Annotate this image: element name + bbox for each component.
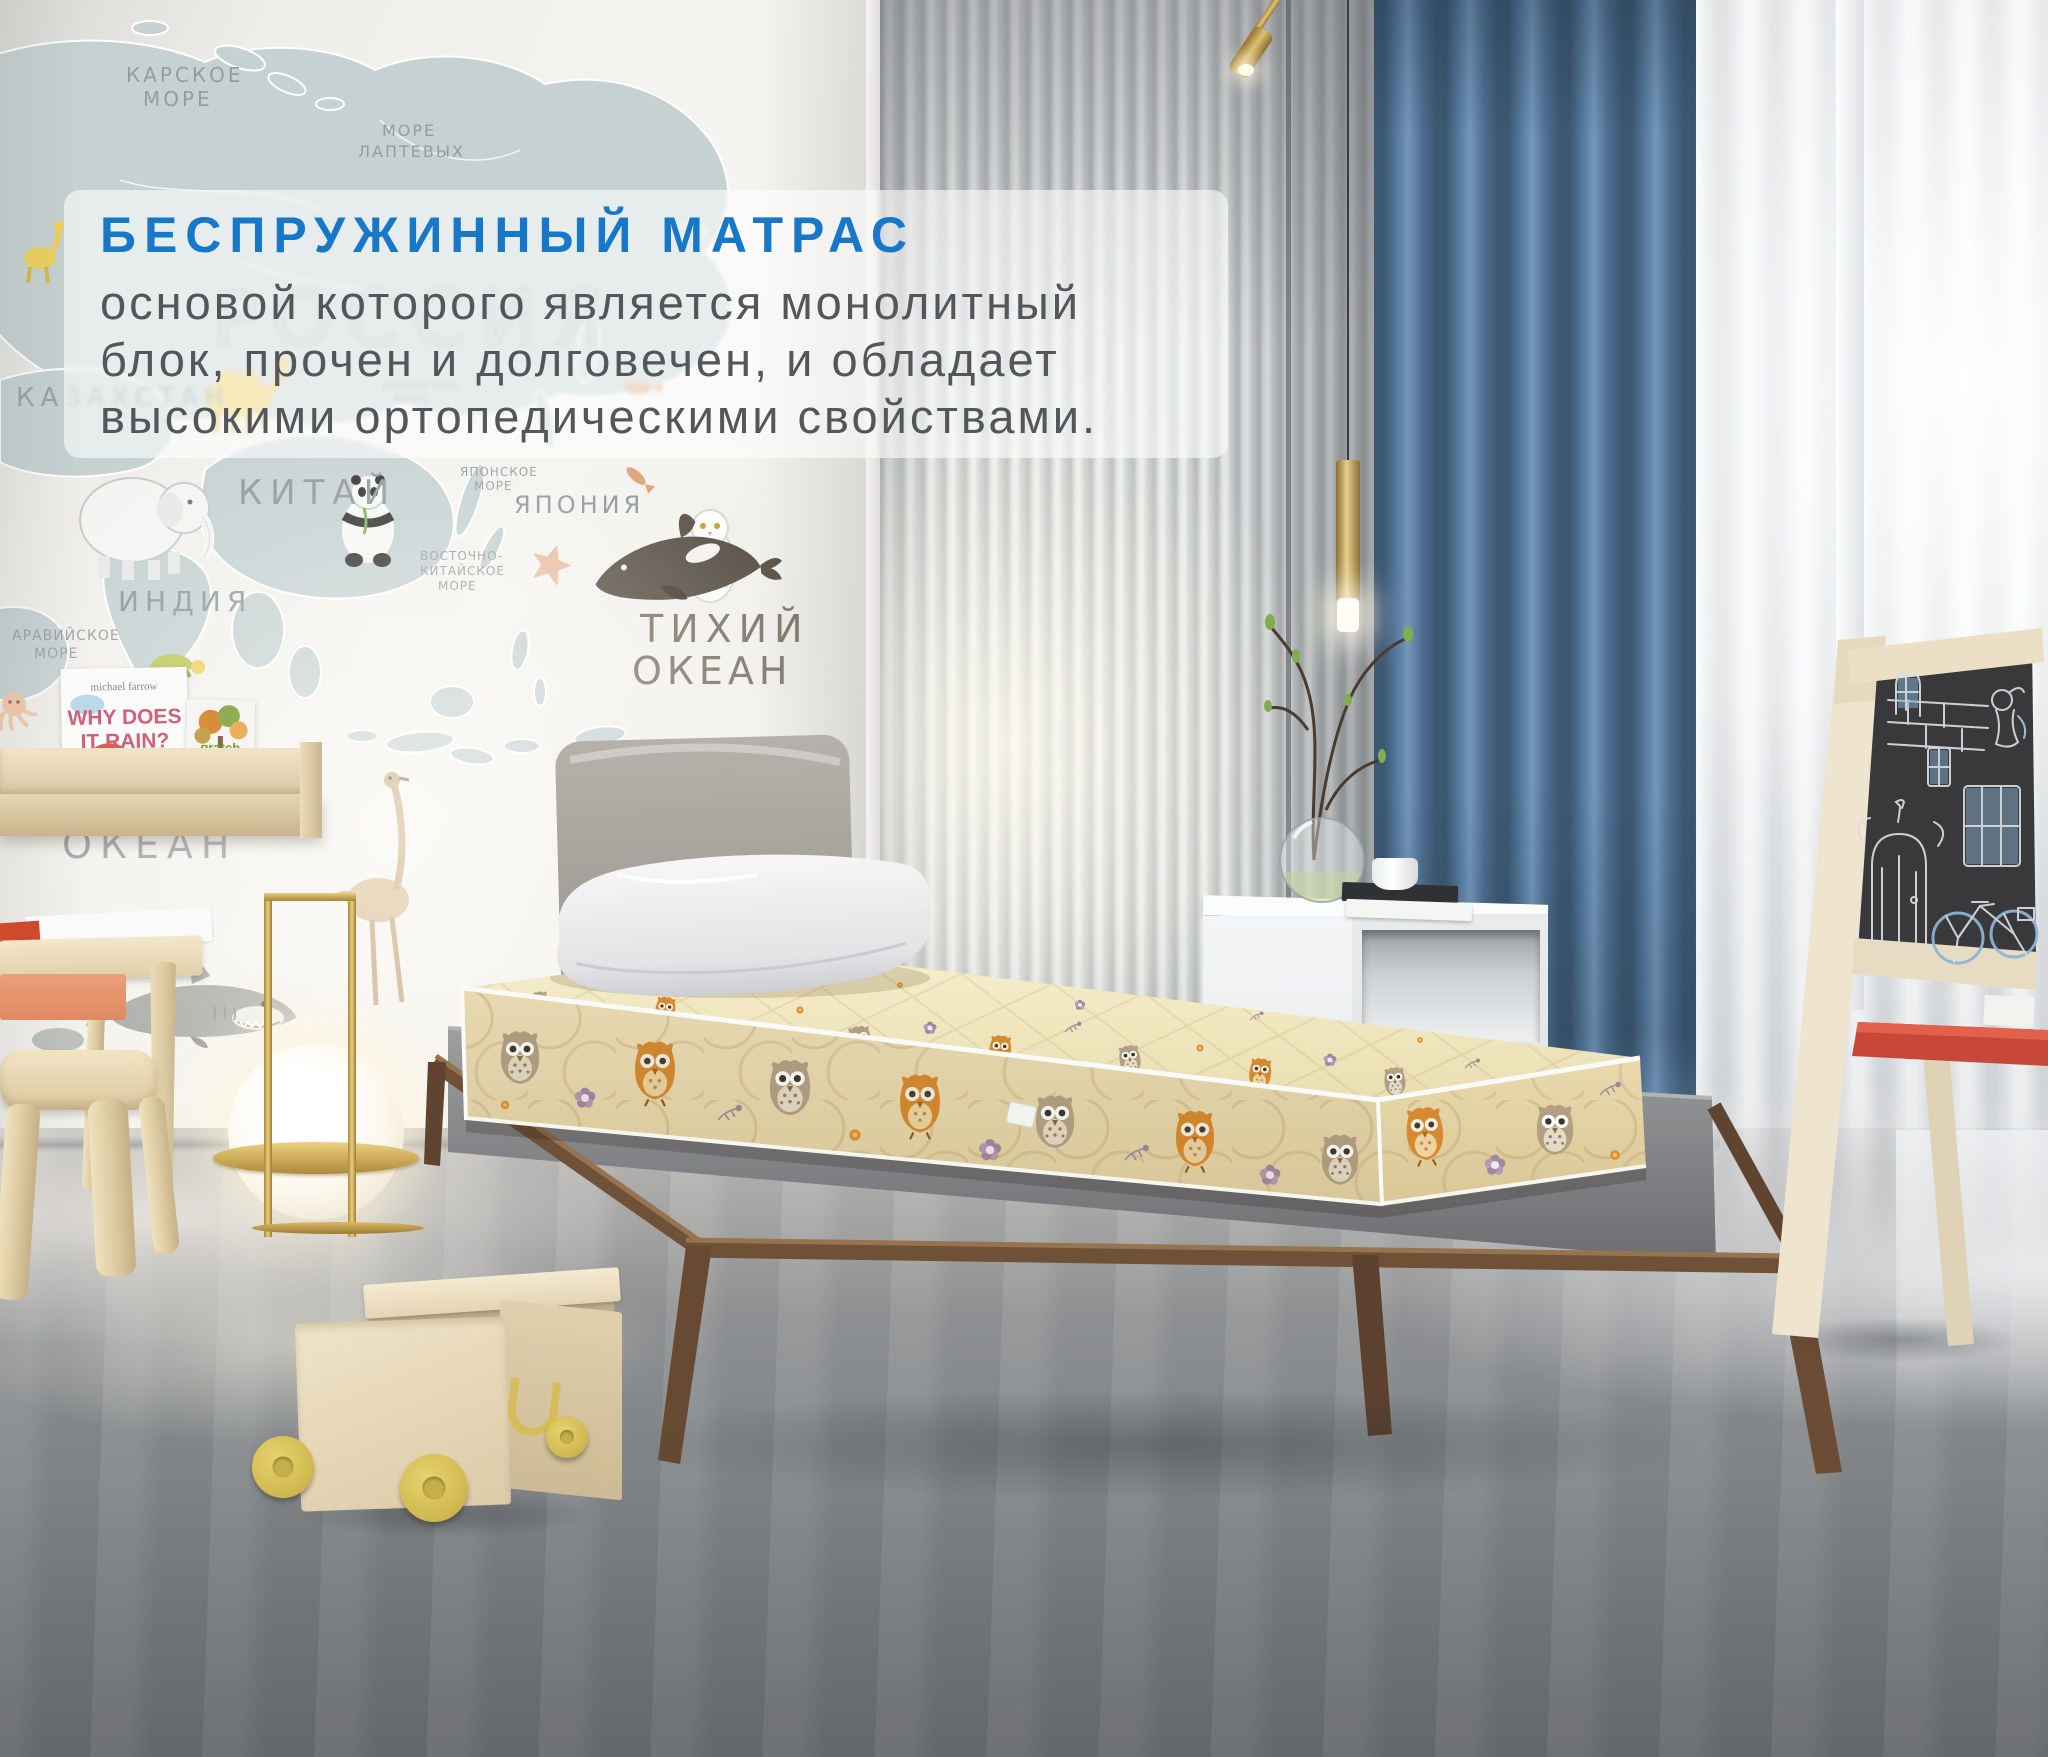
kids-table-drawer: [0, 974, 126, 1020]
wall-bookshelf-rail: [0, 748, 322, 796]
ceiling-spot-glow: [1238, 64, 1254, 76]
floor-lamp-frame-top: [264, 893, 356, 901]
book1-author: michael farrow: [90, 680, 157, 693]
info-panel: БЕСПРУЖИННЫЙ МАТРАС основой которого явл…: [64, 190, 1228, 458]
book1-title-line1: WHY DOES: [67, 705, 181, 730]
floor-lamp-frame-left: [264, 893, 272, 1237]
kids-bedroom-product-photo: КАРСКОЕ МОРЕ МОРЕ ЛАПТЕВЫХ РОССИЯ КАЗАХС…: [0, 0, 2048, 1757]
cart-wheel-center: [400, 1454, 468, 1522]
pendant-wire: [1347, 0, 1349, 464]
bed-floor-shadow: [430, 1370, 1890, 1520]
panel-title: БЕСПРУЖИННЫЙ МАТРАС: [100, 206, 1192, 264]
panel-text-line1: основой которого является монолитный: [100, 274, 1192, 331]
cart-wheel-left: [252, 1436, 314, 1498]
wall-bookshelf-board: [0, 794, 322, 836]
panel-text-line3: высокими ортопедическими свойствами.: [100, 388, 1192, 445]
cart-wheel-right: [546, 1416, 588, 1458]
panel-text-line2: блок, прочен и долговечен, и обладает: [100, 331, 1192, 388]
wall-bookshelf-endcap: [300, 742, 322, 838]
stool-seat: [0, 1050, 156, 1110]
chalkboard-easel: [1750, 596, 2048, 1366]
